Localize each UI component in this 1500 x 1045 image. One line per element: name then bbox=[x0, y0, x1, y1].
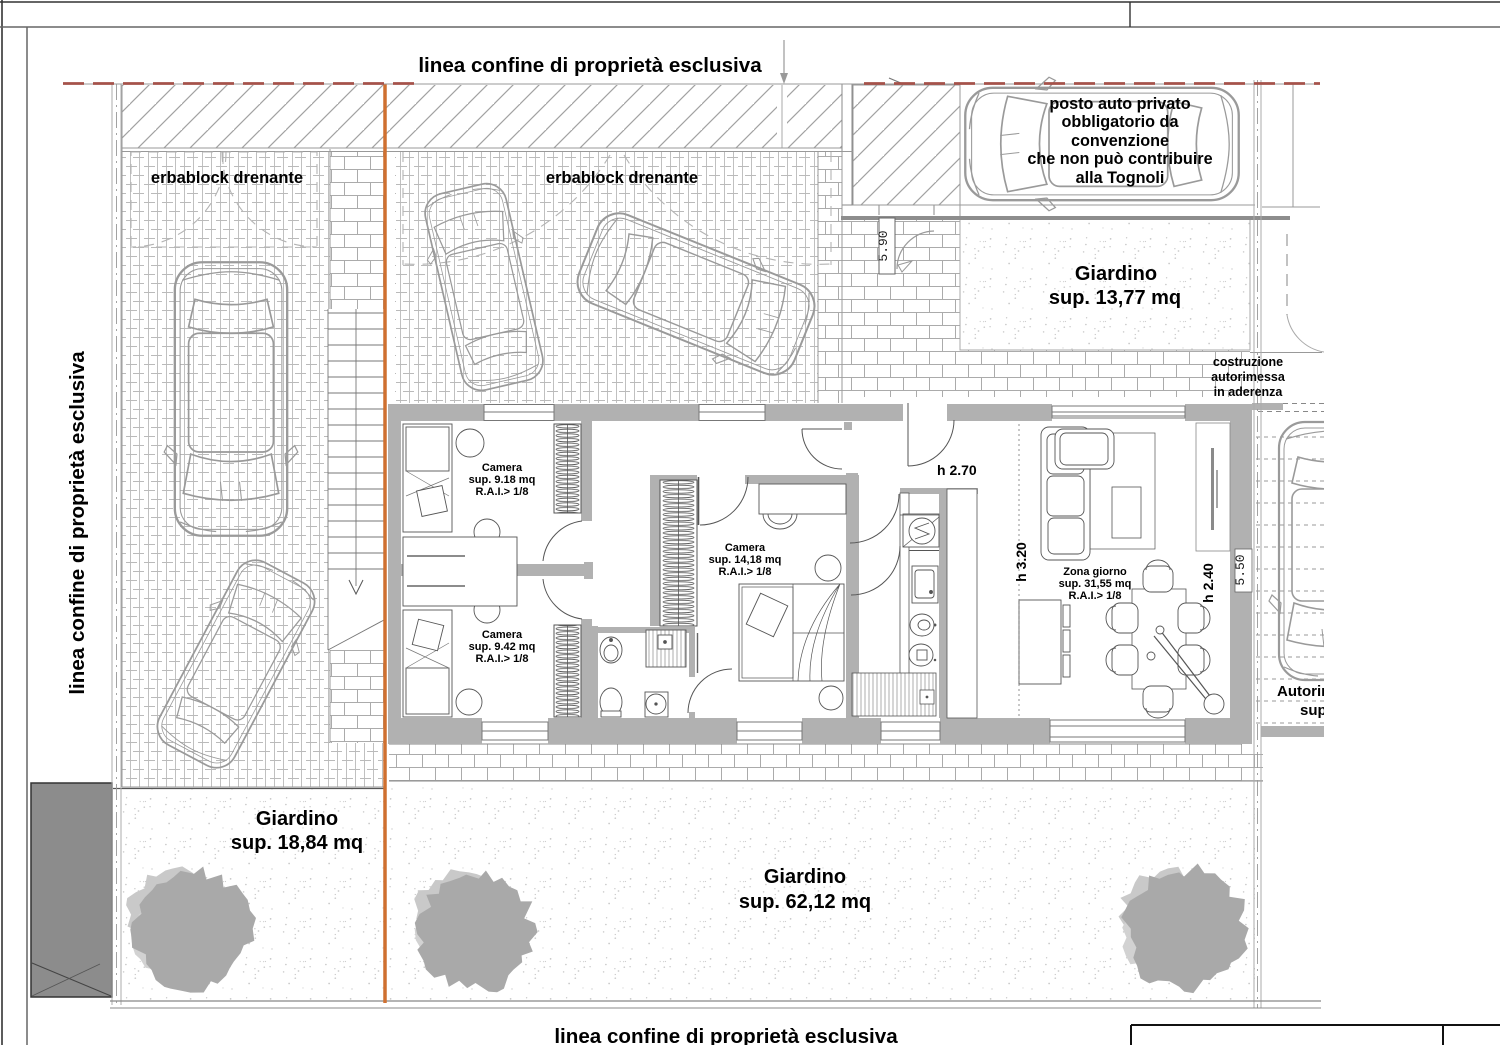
svg-text:sup. 9.18 mq: sup. 9.18 mq bbox=[469, 474, 536, 486]
svg-text:Giardino: Giardino bbox=[764, 866, 846, 888]
svg-text:R.A.I.> 1/8: R.A.I.> 1/8 bbox=[476, 653, 529, 665]
svg-text:h 2.70: h 2.70 bbox=[937, 462, 977, 478]
svg-text:sup. 18,84 mq: sup. 18,84 mq bbox=[231, 832, 363, 854]
svg-text:posto auto privato: posto auto privato bbox=[1049, 95, 1190, 113]
svg-text:sup. 31,55 mq: sup. 31,55 mq bbox=[1059, 578, 1132, 590]
svg-text:Camera: Camera bbox=[725, 542, 766, 554]
svg-text:costruzione: costruzione bbox=[1213, 355, 1283, 369]
svg-text:R.A.I.> 1/8: R.A.I.> 1/8 bbox=[1069, 590, 1122, 602]
svg-text:linea confine di proprietà esc: linea confine di proprietà esclusiva bbox=[66, 351, 89, 695]
svg-text:sup. 14,18 mq: sup. 14,18 mq bbox=[709, 554, 782, 566]
svg-text:sup. 62,12 mq: sup. 62,12 mq bbox=[739, 891, 871, 913]
svg-text:h 3.20: h 3.20 bbox=[1013, 542, 1029, 582]
svg-text:Giardino: Giardino bbox=[1075, 263, 1157, 285]
svg-text:che non può contribuire: che non può contribuire bbox=[1027, 150, 1212, 168]
svg-text:erbablock drenante: erbablock drenante bbox=[151, 169, 303, 187]
svg-text:in aderenza: in aderenza bbox=[1214, 385, 1284, 399]
svg-text:Zona giorno: Zona giorno bbox=[1063, 566, 1127, 578]
svg-text:5.90: 5.90 bbox=[876, 230, 891, 261]
svg-text:Camera: Camera bbox=[482, 629, 523, 641]
svg-text:sup. 9.42 mq: sup. 9.42 mq bbox=[469, 641, 536, 653]
svg-text:linea confine di proprietà esc: linea confine di proprietà esclusiva bbox=[554, 1025, 898, 1045]
svg-text:linea confine di proprietà esc: linea confine di proprietà esclusiva bbox=[418, 54, 762, 77]
svg-text:R.A.I.> 1/8: R.A.I.> 1/8 bbox=[719, 566, 772, 578]
svg-text:h 2.40: h 2.40 bbox=[1200, 563, 1216, 603]
svg-text:5.50: 5.50 bbox=[1233, 554, 1248, 585]
svg-text:obbligatorio da: obbligatorio da bbox=[1062, 113, 1180, 131]
svg-text:erbablock drenante: erbablock drenante bbox=[546, 169, 698, 187]
svg-text:Camera: Camera bbox=[482, 462, 523, 474]
svg-text:autorimessa: autorimessa bbox=[1211, 370, 1286, 384]
svg-text:alla Tognoli: alla Tognoli bbox=[1076, 169, 1165, 187]
svg-text:Giardino: Giardino bbox=[256, 808, 338, 830]
svg-text:convenzione: convenzione bbox=[1071, 132, 1169, 150]
svg-text:sup. 13,77 mq: sup. 13,77 mq bbox=[1049, 287, 1181, 309]
svg-text:R.A.I.> 1/8: R.A.I.> 1/8 bbox=[476, 486, 529, 498]
